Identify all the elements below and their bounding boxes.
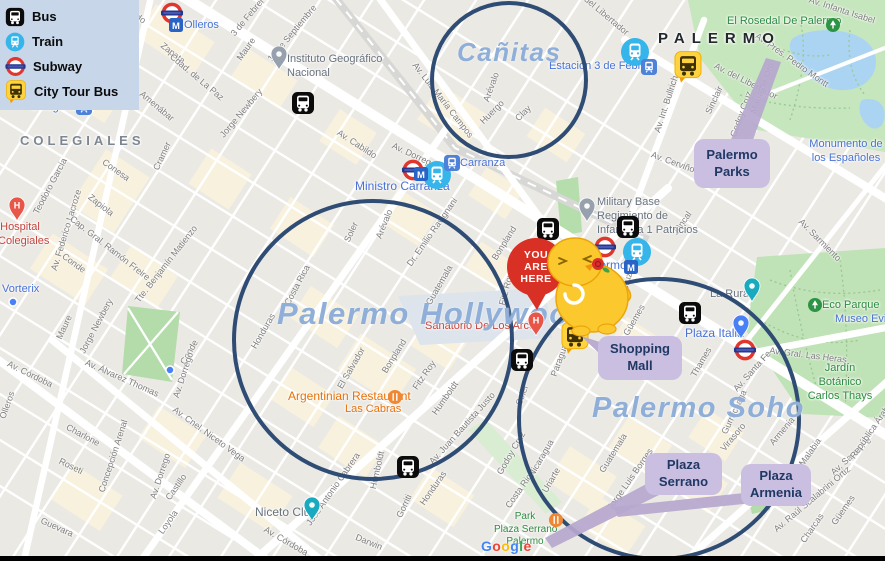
subway-icon <box>5 56 26 77</box>
city-tour-bus-icon <box>5 79 27 104</box>
legend-row-subway: Subway <box>5 55 133 78</box>
you-are-here-line: YOU <box>505 249 567 261</box>
you-are-here-line: HERE <box>505 273 567 285</box>
watermark-letter: g <box>510 538 519 554</box>
watermark-letter: o <box>492 538 501 554</box>
bottom-bar <box>0 556 885 561</box>
legend-label-bus: Bus <box>32 9 57 24</box>
legend-row-train: Train <box>5 30 133 53</box>
watermark-letter: e <box>523 538 531 554</box>
legend-row-city-tour-bus: City Tour Bus <box>5 80 133 103</box>
rose-icon <box>592 258 604 270</box>
legend-label-train: Train <box>32 34 63 49</box>
you-are-here-line: ARE <box>505 261 567 273</box>
legend: Bus Train Subway City Tour Bus <box>0 0 139 110</box>
legend-row-bus: Bus <box>5 5 133 28</box>
watermark-letter: G <box>481 538 492 554</box>
map[interactable]: Av. CabildoAv. Cabildo3 de Febrero11 de … <box>0 0 885 561</box>
you-are-here-text: YOUAREHERE <box>505 249 567 286</box>
watermark-letter: o <box>501 538 510 554</box>
legend-label-city-tour-bus: City Tour Bus <box>34 84 118 99</box>
google-watermark: Google <box>481 538 532 554</box>
train-icon <box>5 32 25 52</box>
bus-icon <box>5 7 25 27</box>
legend-label-subway: Subway <box>33 59 82 74</box>
